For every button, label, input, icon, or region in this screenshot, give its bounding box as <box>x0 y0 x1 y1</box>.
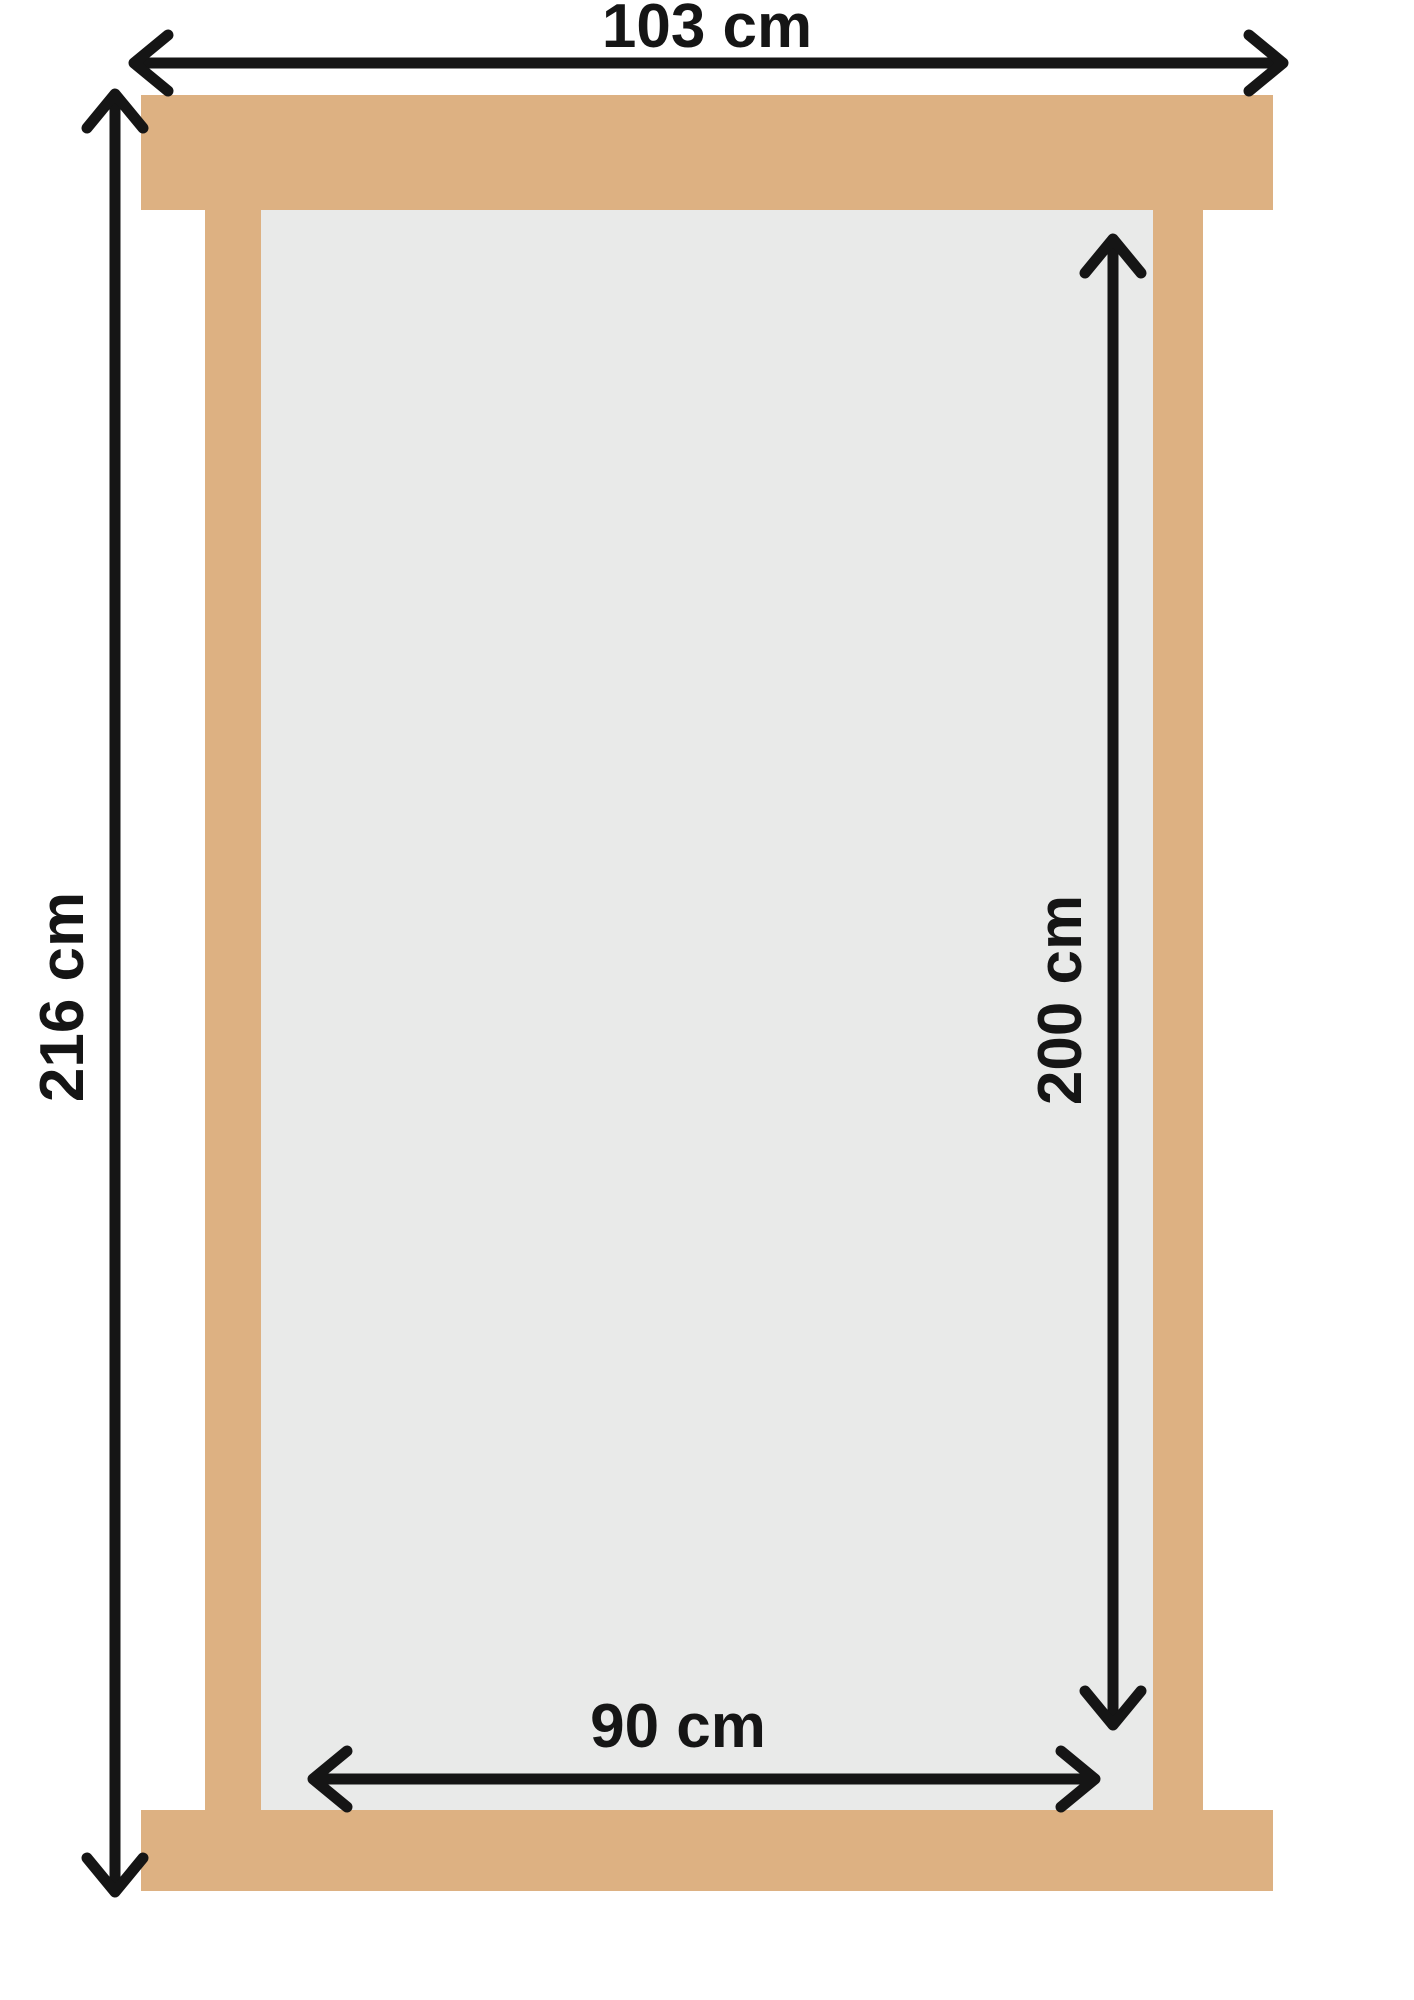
outer-height-label: 216 cm <box>32 892 94 1102</box>
frame-left-stile <box>205 210 261 1810</box>
inner-width-label: 90 cm <box>590 1696 766 1758</box>
frame-dimension-diagram: 103 cm 216 cm 200 cm 90 cm <box>0 0 1414 2000</box>
door-opening <box>261 210 1153 1810</box>
frame-right-stile <box>1153 210 1203 1810</box>
frame-bottom-rail <box>141 1810 1273 1891</box>
frame-top-rail <box>141 95 1273 210</box>
outer-width-label: 103 cm <box>602 0 812 58</box>
inner-height-label: 200 cm <box>1030 895 1092 1105</box>
